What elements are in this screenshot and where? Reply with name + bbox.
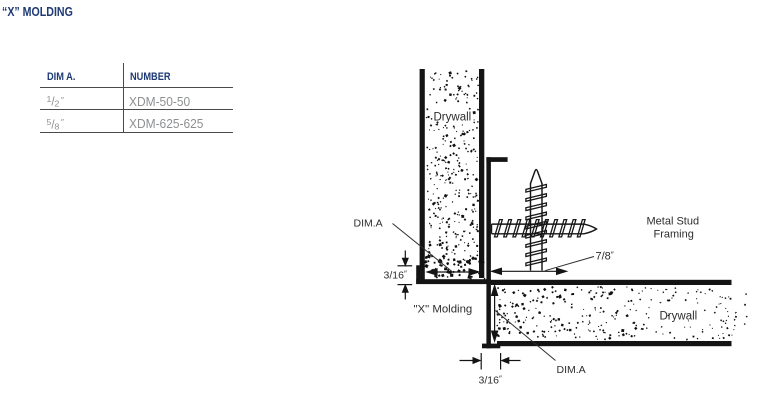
svg-text:Drywall: Drywall — [660, 311, 698, 323]
svg-text:DIM.A: DIM.A — [354, 218, 383, 230]
svg-text:"X" Molding: "X" Molding — [414, 304, 473, 316]
svg-text:7/8″: 7/8″ — [596, 250, 614, 263]
svg-text:Framing: Framing — [654, 229, 694, 241]
svg-text:Metal Stud: Metal Stud — [647, 216, 700, 228]
svg-text:3/16″: 3/16″ — [479, 375, 502, 387]
svg-text:Drywall: Drywall — [434, 112, 472, 124]
svg-text:3/16″: 3/16″ — [384, 270, 407, 282]
svg-text:DIM.A: DIM.A — [557, 364, 586, 376]
